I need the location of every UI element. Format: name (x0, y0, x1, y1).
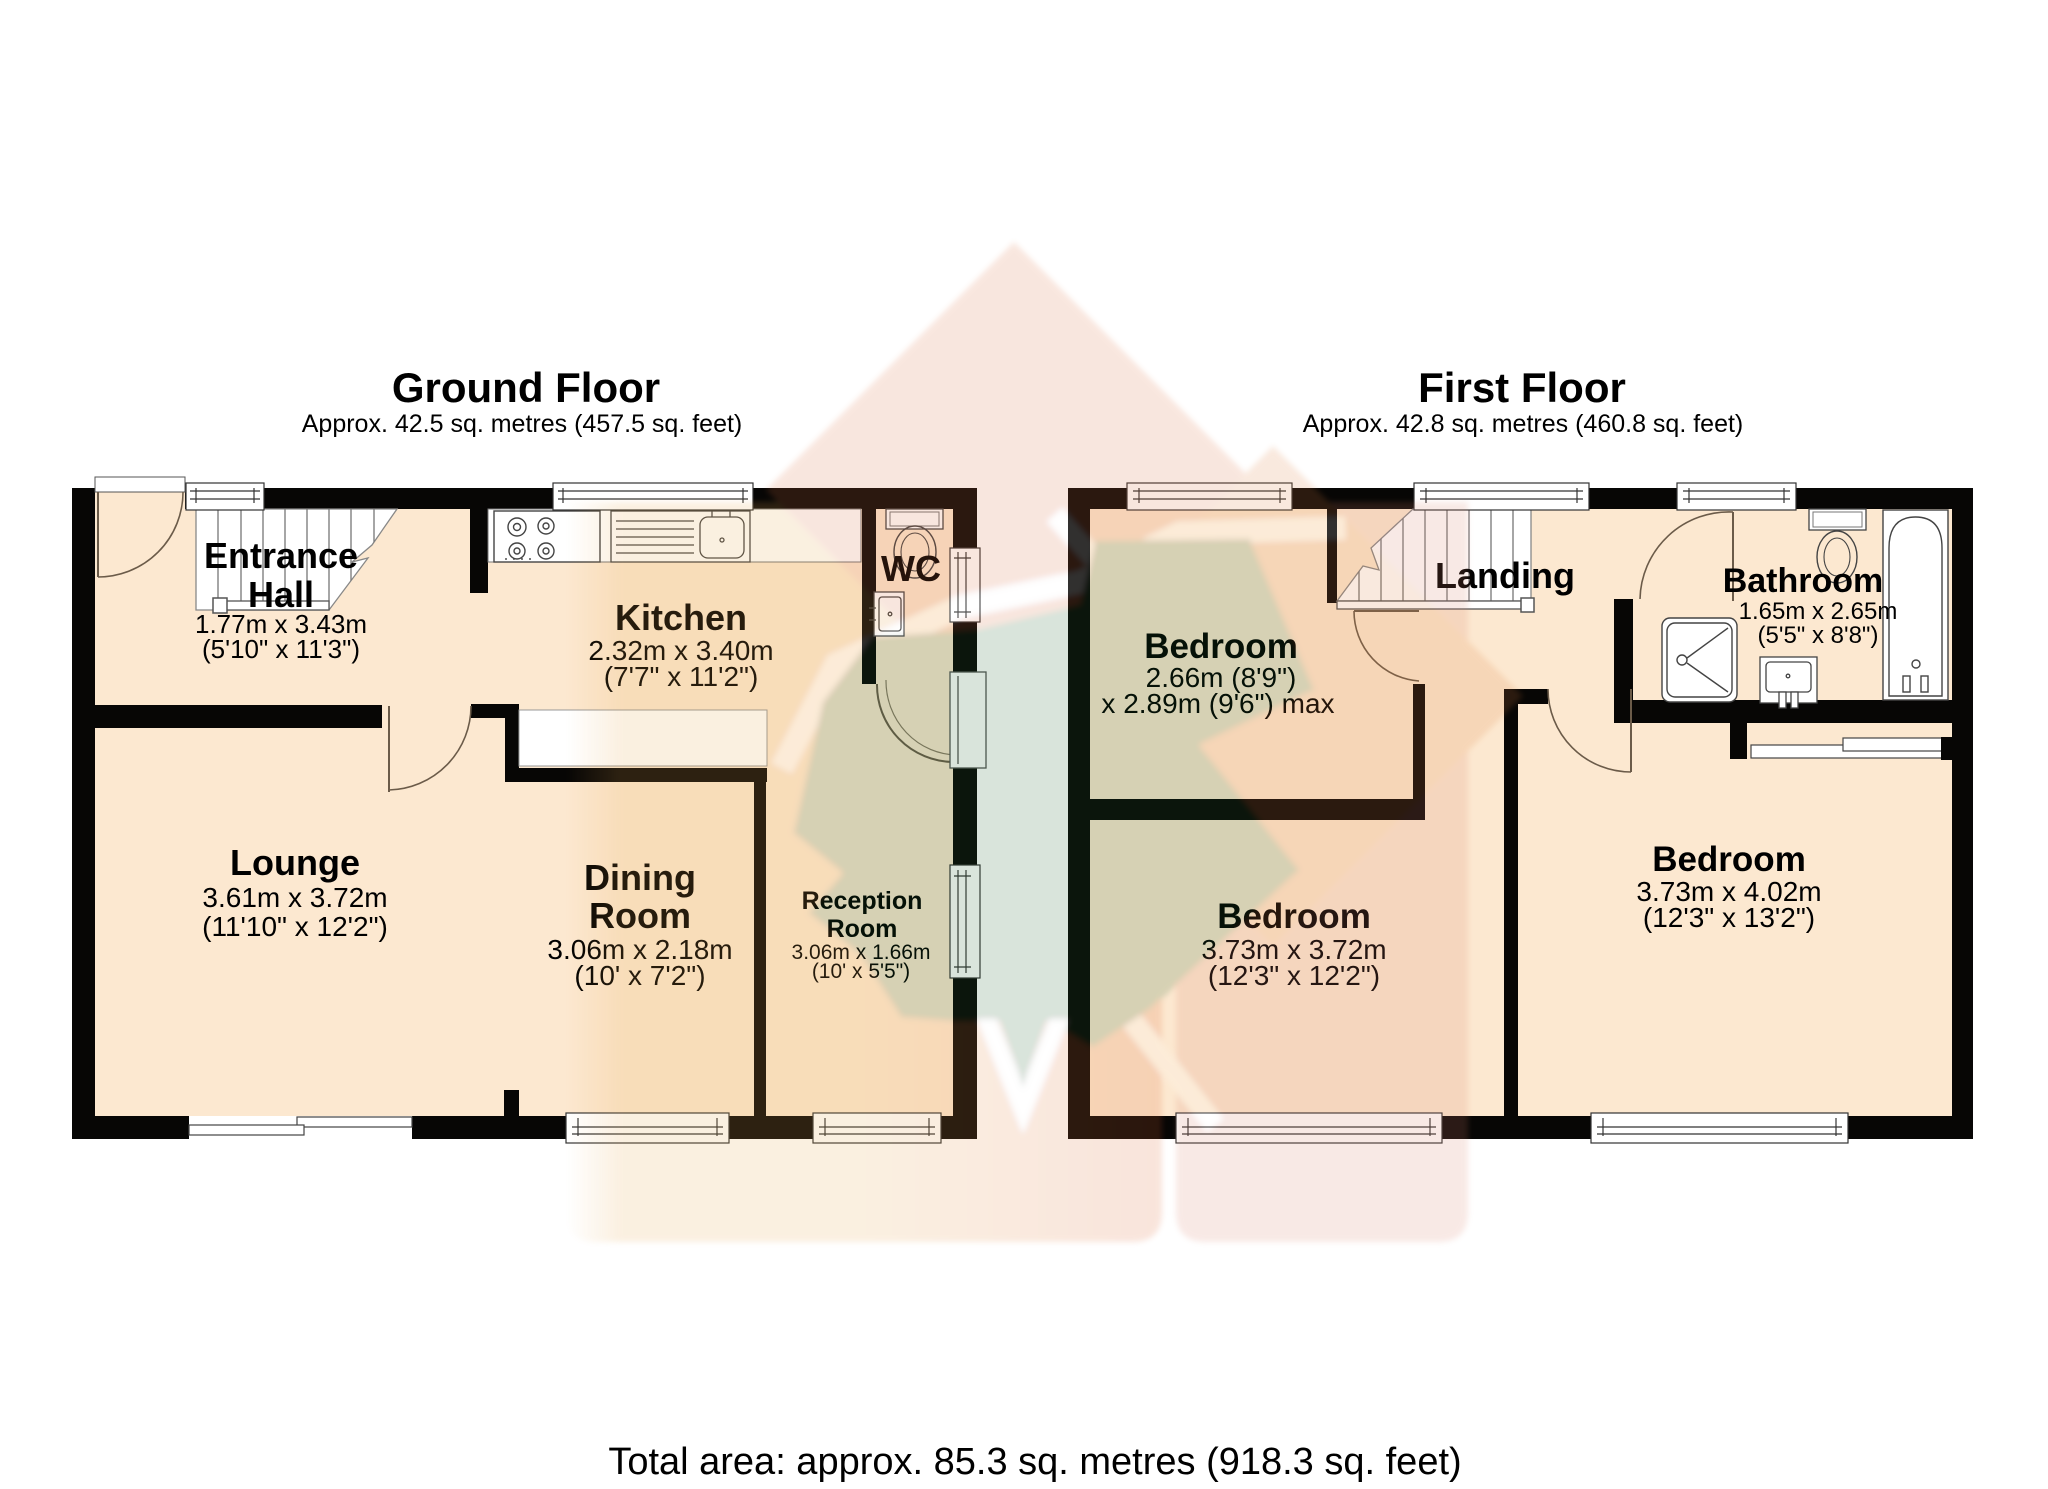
svg-text:Approx. 42.5 sq. metres (457.5: Approx. 42.5 sq. metres (457.5 sq. feet) (302, 410, 743, 438)
svg-text:Ground Floor: Ground Floor (392, 364, 660, 411)
svg-text:Bathroom: Bathroom (1723, 562, 1884, 600)
svg-text:(11'10" x 12'2"): (11'10" x 12'2") (202, 911, 388, 942)
svg-text:Bedroom: Bedroom (1652, 840, 1806, 879)
svg-text:First Floor: First Floor (1418, 364, 1626, 411)
svg-text:1.65m x 2.65m: 1.65m x 2.65m (1739, 598, 1898, 625)
svg-text:(12'3" x 13'2"): (12'3" x 13'2") (1643, 902, 1815, 933)
svg-text:3.61m x 3.72m: 3.61m x 3.72m (202, 882, 387, 913)
svg-text:(5'5" x 8'8"): (5'5" x 8'8") (1758, 622, 1879, 649)
svg-text:Total area: approx. 85.3 sq. m: Total area: approx. 85.3 sq. metres (918… (608, 1441, 1461, 1483)
svg-text:Lounge: Lounge (230, 842, 360, 883)
svg-text:Approx. 42.8 sq. metres (460.8: Approx. 42.8 sq. metres (460.8 sq. feet) (1303, 410, 1744, 438)
svg-text:(5'10" x 11'3"): (5'10" x 11'3") (202, 634, 360, 664)
svg-text:Entrance: Entrance (204, 535, 358, 576)
